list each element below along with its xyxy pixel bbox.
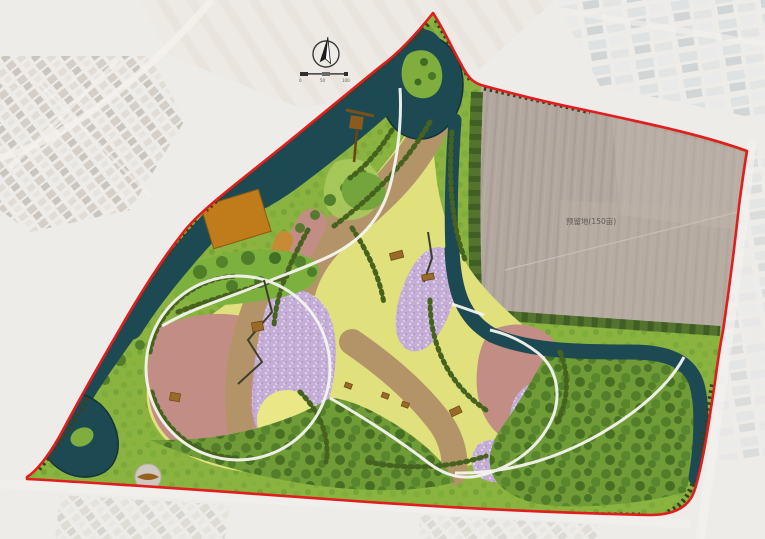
scale-tick-2: 100 (342, 78, 350, 83)
masterplan-image: 预留地(150亩) 0 50 100 (0, 0, 765, 539)
scale-tick-1: 50 (320, 78, 326, 83)
masterplan-svg: 预留地(150亩) 0 50 100 (0, 0, 765, 539)
field-label: 预留地(150亩) (566, 216, 616, 226)
